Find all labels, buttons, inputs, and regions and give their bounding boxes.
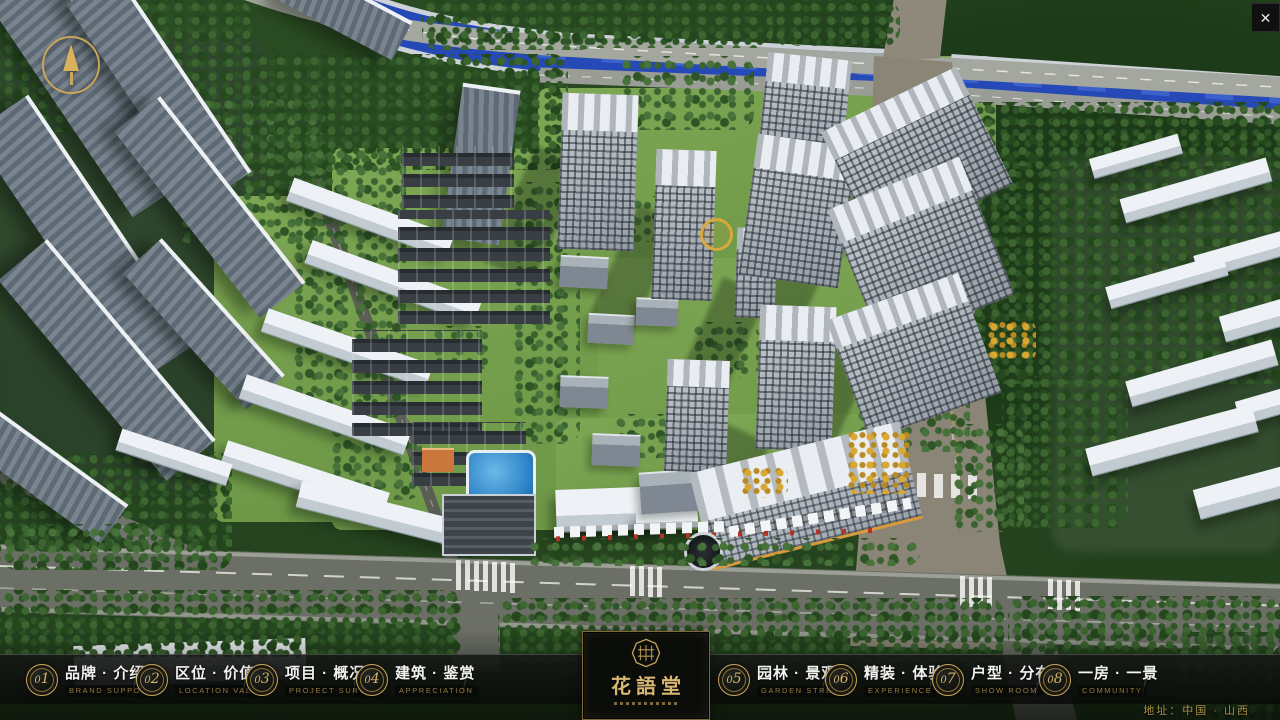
low-rise-row-building [1219,280,1280,342]
low-rise-row-building [239,374,412,455]
lawn [820,56,996,184]
autumn-trees [986,320,1036,362]
tree-grove [936,166,1280,384]
nav-item-label: 品牌 · 介绍 [65,662,145,683]
low-rise-row-building [286,178,454,260]
nav-item-number: 04 [364,672,379,686]
tree-grove [688,322,760,378]
swimming-pool [466,450,536,502]
logo-panel[interactable]: 花語堂 [582,631,710,720]
city-building-slab [123,238,285,410]
buildings-layer [0,0,1280,720]
tree-grove [508,182,580,444]
residential-tower [821,67,1013,250]
courtyard-building [442,494,536,556]
main-road-lane-dashes [0,588,1280,628]
address-text: 地址：中国 · 山西 [1143,702,1250,718]
crosswalk-avenue [866,472,977,499]
townhouse-cluster [352,330,482,436]
central-avenue [850,56,1012,650]
nav-number-badge: 03 [246,664,278,696]
nav-item-label: 区位 · 价值 [175,662,255,683]
residential-tower [557,93,638,252]
tree-grove [852,356,970,452]
nav-number-badge: 06 [825,664,857,696]
nav-number-badge: 07 [932,664,964,696]
main-road-center-dashes [0,566,1280,606]
lawn [214,196,368,522]
tree-grove [326,424,422,500]
mid-rise-building [559,375,608,409]
townhouse-cluster [402,146,514,208]
tree-grove [176,96,326,244]
street-colonnade [728,498,911,538]
tree-grove [558,0,773,48]
low-rise-row-building [1085,404,1259,477]
residential-slab-tower [689,421,923,570]
residential-tower [756,305,837,452]
nav-item-number: 07 [940,672,955,686]
tree-grove [0,452,232,570]
residential-tower [827,273,1002,440]
riverside-road-upper [236,0,1280,88]
tree-grove [606,196,686,242]
nav-item-number: 01 [34,672,49,686]
main-road-edge [0,547,1280,587]
street-shop-signs [556,528,892,542]
nav-item-number: 06 [833,672,848,686]
residential-tower [734,227,777,318]
mid-rise-building [559,255,609,289]
lawn [538,88,874,292]
city-building-slab [114,96,305,318]
autumn-trees [846,430,912,494]
townhouse-cluster [398,210,550,324]
roads-and-river [0,0,1280,720]
river-water [950,77,1280,100]
city-building-slab [0,408,128,543]
mid-rise-building [639,467,720,514]
residential-tower [664,359,730,473]
autumn-trees [740,466,788,498]
central-avenue-yellow-line [921,196,960,470]
city-building-slab [275,0,412,60]
city-building-slab [0,95,196,382]
low-rise-row-building [1193,217,1280,280]
street-tree-grove [948,424,1024,532]
entrance-plaza-circle [684,532,723,571]
townhouse-cluster [412,422,526,486]
nav-item-floorplan-distribution[interactable]: 07 户型 · 分布SHOW ROOM [932,655,1038,704]
tree-grove [610,414,680,458]
playground-ring [700,218,733,251]
residential-tower [756,52,852,180]
nav-item-architecture[interactable]: 04 建筑 · 鉴赏APPRECIATION [356,655,465,704]
building-shadow [589,204,681,334]
street-tree-grove [0,590,462,658]
nav-item-sublabel: SHOW ROOM [971,685,1042,697]
tree-grove [0,0,252,132]
river-water [292,0,888,72]
lawn [556,418,794,530]
tree-grove [238,54,568,170]
low-rise-row-building [1089,134,1183,180]
street-tree-grove [1008,596,1280,656]
crosswalk-main-west [456,560,515,593]
building-shadow [746,176,856,327]
city-building-slab [66,0,251,205]
mid-rise-building [636,297,679,326]
residential-tower [739,134,858,289]
building-shadow [682,421,771,528]
compass-icon [42,36,100,94]
lawn [694,414,904,520]
street-tree-grove [0,524,204,556]
low-rise-row-building [1235,371,1280,426]
residential-tower [651,149,716,301]
street-trees-layer [0,0,1280,720]
presentation-window: 01 品牌 · 介绍BRAND SUPPORT 02 区位 · 价值LOCATI… [0,0,1280,720]
road-southwest [0,468,210,566]
tree-grove [428,326,494,370]
low-rise-row-building [1193,447,1280,520]
riverside-road-lower-dashes [540,75,1280,118]
city-ground [0,36,264,492]
building-shadow [785,324,878,447]
tree-grove [616,56,754,130]
low-rise-row-building [115,429,232,487]
street-tree-grove [498,598,1004,662]
residential-tower [827,157,1014,347]
nav-number-badge: 01 [26,664,58,696]
low-rise-row-building [304,240,482,325]
mid-rise-building [587,313,635,345]
low-rise-row-building [555,486,668,533]
low-rise-row-building [1125,340,1279,408]
building-shadow [681,277,767,392]
nav-item-room-view[interactable]: 08 一房 · 一景COMMUNITY [1039,655,1145,704]
nav-item-number: 08 [1047,672,1062,686]
logo-subline [614,702,678,705]
low-rise-row-building [636,511,699,530]
crosswalk-main-center [630,566,662,597]
nav-item-project-overview[interactable]: 03 项目 · 概况PROJECT SURVEY [246,655,355,704]
mid-rise-building [591,433,640,467]
building-shadow [484,145,584,283]
inner-road-west-dashes [316,180,452,560]
riverside-road-lower [540,75,1280,118]
city-building-slab [0,239,216,481]
tree-grove [772,0,900,46]
nav-item-number: 02 [144,672,159,686]
city-ground [1052,156,1280,552]
street-tree-grove [524,538,920,566]
nav-item-brand-intro[interactable]: 01 品牌 · 介绍BRAND SUPPORT [26,655,135,704]
nav-item-label: 项目 · 概况 [285,662,365,683]
masterplan-3d-view[interactable] [0,0,1280,720]
low-rise-row-building [296,481,489,554]
nav-item-sublabel: COMMUNITY [1078,685,1147,697]
tree-grove [288,146,406,418]
inner-road-west [316,180,452,560]
logo-name: 花語堂 [606,670,686,699]
lawn [332,148,670,530]
river-banks [950,77,1280,100]
nav-item-number: 03 [254,672,269,686]
tree-grove [946,102,1280,174]
city-building-slab [441,83,520,246]
nav-group-left: 01 品牌 · 介绍BRAND SUPPORT 02 区位 · 价值LOCATI… [0,655,609,704]
low-rise-row-building [1105,254,1229,310]
nav-number-badge: 02 [136,664,168,696]
nav-item-garden-landscape[interactable]: 05 园林 · 景观GARDEN STREET [718,655,824,704]
central-avenue-dashes [913,132,957,468]
nav-item-sublabel: EXPERIENCE [864,685,936,697]
crosswalk-main-east [960,576,1080,611]
nav-number-badge: 04 [356,664,388,696]
lawn [598,258,934,482]
nav-number-badge: 05 [718,664,750,696]
north-road [882,0,948,62]
low-rise-row-building [220,440,390,517]
terrain-layer [0,0,1280,720]
nav-item-location-value[interactable]: 02 区位 · 价值LOCATION VALUE [136,655,245,704]
river-streaks [292,0,1280,100]
nav-item-interior-experience[interactable]: 06 精装 · 体验EXPERIENCE [825,655,931,704]
tree-grove [1002,376,1128,528]
nav-number-badge: 08 [1039,664,1071,696]
river-banks [292,0,888,72]
road-southwest-dashes [0,468,210,566]
low-rise-row-building [1119,158,1272,224]
nav-item-number: 05 [726,672,741,686]
nav-item-label: 建筑 · 鉴赏 [395,662,475,683]
nav-group-right: 05 园林 · 景观GARDEN STREET 06 精装 · 体验EXPERI… [710,655,1280,704]
close-button[interactable]: ✕ [1251,3,1280,32]
orange-roof-building [422,448,454,472]
tree-grove [422,0,597,50]
nav-item-sublabel: APPRECIATION [395,685,478,697]
close-icon: ✕ [1260,11,1272,25]
street-colonnade [554,521,724,538]
low-rise-row-building [261,308,434,388]
seal-emblem-icon [630,637,662,669]
riverside-road-upper-dashes [236,0,1280,88]
city-building-slab [0,0,194,217]
